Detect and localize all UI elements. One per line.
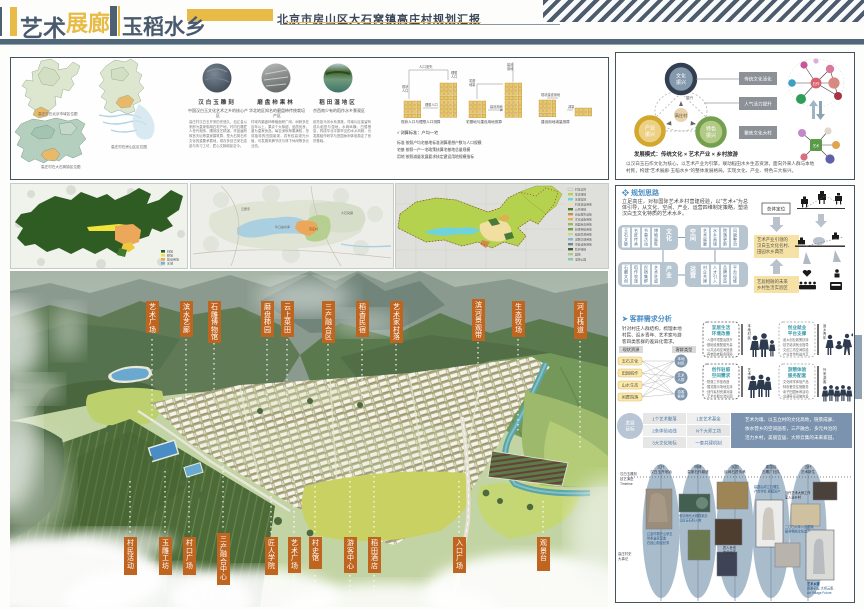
svg-text:产业: 产业 (645, 125, 655, 132)
svg-text:以汉白玉石作文化为核心，以艺术产业为引擎，联动稻田水乡生态资: 以汉白玉石作文化为核心，以艺术产业为引擎，联动稻田水乡生态资源，面向外来人群与本… (626, 160, 815, 167)
svg-text:特色: 特色 (706, 126, 716, 133)
svg-text:云居寺: 云居寺 (241, 206, 250, 211)
svg-text:现状建设用地: 现状建设用地 (541, 92, 561, 97)
svg-text:振兴: 振兴 (706, 132, 716, 139)
svg-text:建设用地: 建设用地 (490, 104, 504, 109)
svg-text:村民，构建"艺术展廊·玉稻水乡"的整体发展格局，实现文化、产: 村民，构建"艺术展廊·玉稻水乡"的整体发展格局，实现文化、产业、特色三大振兴。 (626, 167, 796, 174)
svg-text:牛口峪水库: 牛口峪水库 (275, 224, 290, 229)
svg-text:石作: 石作 (813, 81, 820, 86)
svg-text:防护绿地: 防护绿地 (575, 247, 586, 251)
svg-text:高庄村: 高庄村 (675, 112, 688, 119)
svg-text:生态绿地: 生态绿地 (575, 192, 586, 196)
svg-text:文化: 文化 (676, 73, 686, 80)
svg-text:高庄村在北京市域区位图: 高庄村在北京市域区位图 (38, 111, 78, 116)
svg-text:湿地公园: 湿地公园 (575, 257, 586, 261)
svg-text:文化设施用地: 文化设施用地 (575, 217, 592, 221)
svg-text:地量: 地量 (469, 82, 476, 87)
svg-text:减量: 减量 (568, 104, 575, 109)
svg-text:园地: 园地 (575, 252, 581, 256)
svg-text:林果种植用地: 林果种植用地 (575, 227, 592, 231)
svg-text:人气活力提升: 人气活力提升 (744, 101, 772, 108)
svg-text:高庄村在大石窝镇区位图: 高庄村在大石窝镇区位图 (41, 164, 81, 169)
svg-text:水域: 水域 (167, 261, 173, 266)
svg-text:高庄村: 高庄村 (309, 226, 318, 231)
svg-text:聚焦文化大村: 聚焦文化大村 (744, 130, 772, 137)
svg-text:大石窝镇: 大石窝镇 (341, 210, 353, 215)
svg-text:现状人口与理想人口测算: 现状人口与理想人口测算 (401, 119, 441, 124)
svg-text:商业服务设施: 商业服务设施 (575, 212, 592, 216)
svg-text:公共绿地: 公共绿地 (575, 207, 586, 211)
svg-text:水域湿地: 水域湿地 (575, 197, 586, 201)
svg-text:理想人口: 理想人口 (425, 102, 438, 107)
svg-text:√ 测算标准：户均一宅: √ 测算标准：户均一宅 (397, 129, 438, 136)
svg-text:稻田景观用地: 稻田景观用地 (575, 232, 592, 236)
svg-text:振兴: 振兴 (645, 131, 655, 138)
svg-text:建设用地减量测算: 建设用地减量测算 (541, 119, 570, 124)
svg-text:村庄边界: 村庄边界 (575, 187, 586, 191)
svg-text:振兴: 振兴 (686, 95, 694, 100)
svg-text:发展模式：传统文化 × 艺术产业 × 乡村旅游: 发展模式：传统文化 × 艺术产业 × 乡村旅游 (633, 150, 739, 158)
svg-text:村庄建设用地: 村庄建设用地 (575, 202, 592, 206)
svg-text:振兴: 振兴 (676, 79, 686, 86)
svg-text:人口流失: 人口流失 (419, 64, 433, 69)
svg-text:用地 按照减量发展要求核定建设用地规模指标: 用地 按照减量发展要求核定建设用地规模指标 (397, 154, 474, 159)
svg-text:高庄村在房山区区位图: 高庄村在房山区区位图 (111, 144, 147, 149)
svg-text:道路交通用地: 道路交通用地 (575, 237, 592, 241)
svg-text:人口: 人口 (402, 89, 408, 93)
svg-text:标准 按照户均宅基地标准测算理想户数与人口规模: 标准 按照户均宅基地标准测算理想户数与人口规模 (397, 140, 482, 145)
svg-text:市政设施用地: 市政设施用地 (575, 242, 592, 246)
svg-text:艺术: 艺术 (813, 143, 820, 148)
svg-text:宅基地与建设用地测算: 宅基地与建设用地测算 (466, 119, 502, 124)
svg-text:人口: 人口 (451, 75, 457, 79)
svg-text:宅基 按照一户一宅政策核算宅基地总量规模: 宅基 按照一户一宅政策核算宅基地总量规模 (397, 147, 470, 152)
svg-text:用地: 用地 (507, 66, 514, 71)
svg-text:田园综合用地: 田园综合用地 (575, 222, 592, 226)
svg-text:传统文化活化: 传统文化活化 (744, 76, 772, 83)
